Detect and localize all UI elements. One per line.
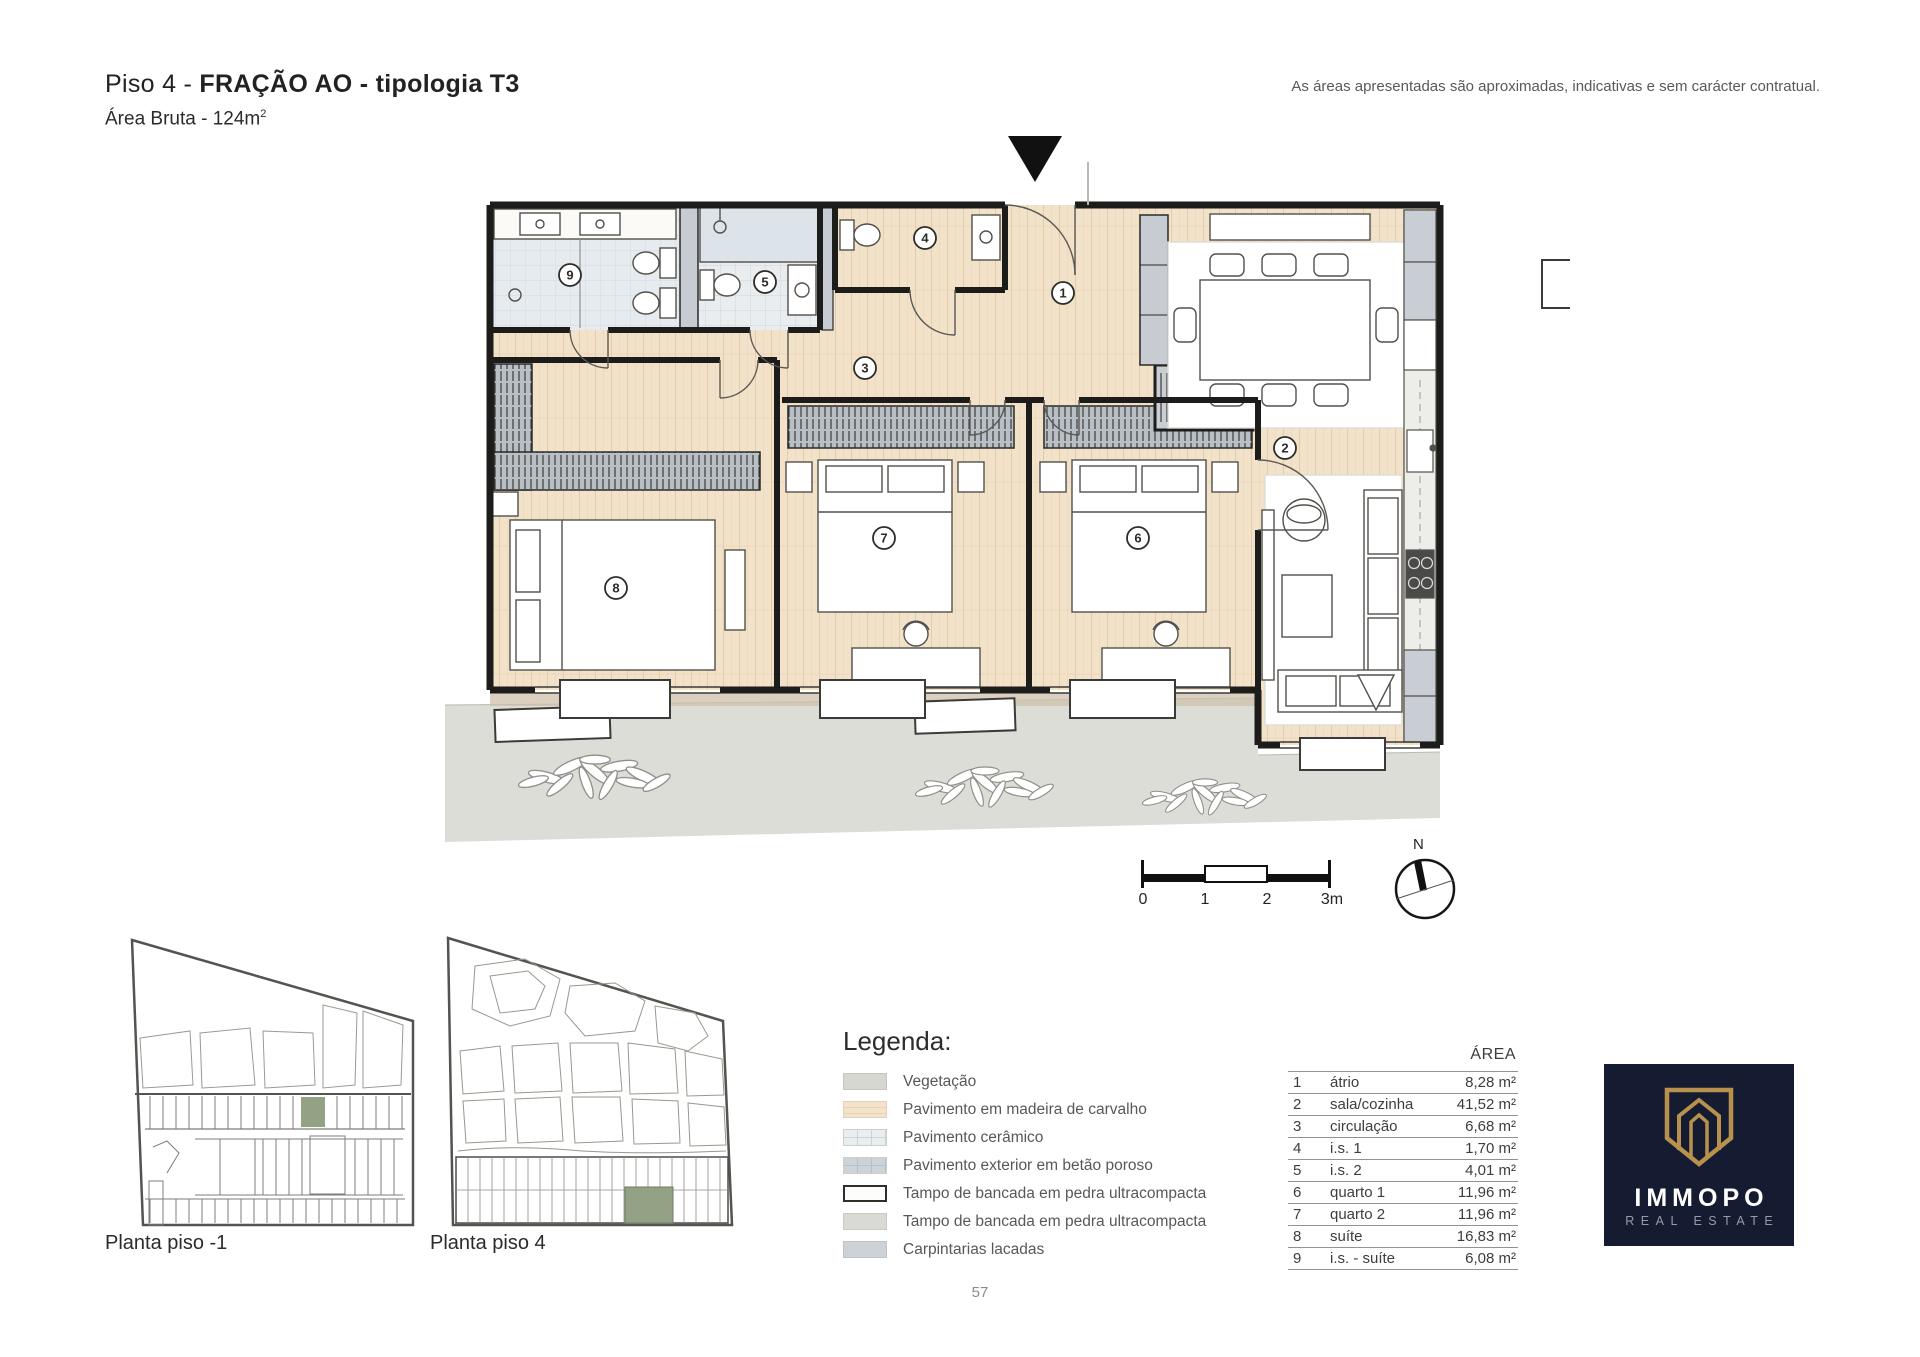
room-label-1: 1	[1059, 286, 1066, 301]
highlighted-unit	[301, 1097, 325, 1127]
chair	[1262, 384, 1296, 406]
terrace-planter-box	[914, 698, 1015, 733]
toilet	[854, 224, 880, 246]
kitchen	[1404, 210, 1436, 742]
sink	[788, 265, 816, 315]
sliding-door-panel	[1070, 680, 1175, 718]
nightstand	[1212, 462, 1238, 492]
nightstand	[958, 462, 984, 492]
room-label-5: 5	[761, 275, 768, 290]
room-label-8: 8	[612, 581, 619, 596]
page-title: Piso 4 - FRAÇÃO AO - tipologia T3	[105, 70, 520, 99]
entrance-arrow-icon	[1008, 136, 1062, 182]
dining-table	[1200, 280, 1370, 380]
legend-item: Pavimento cerâmico	[843, 1129, 1263, 1146]
bidet	[633, 292, 659, 314]
disclaimer-text: As áreas apresentadas são aproximadas, i…	[1020, 78, 1820, 95]
legend: Legenda: Vegetação Pavimento em madeira …	[843, 1026, 1263, 1269]
shaft	[680, 205, 698, 330]
cooktop	[1406, 550, 1434, 598]
stone-white-swatch	[843, 1185, 887, 1202]
legend-item: Pavimento em madeira de carvalho	[843, 1101, 1263, 1118]
kitchen-cabinet	[1404, 262, 1436, 320]
pillow	[1142, 466, 1198, 492]
brand-name: IMMOPO	[1604, 1184, 1794, 1213]
page: Piso 4 - FRAÇÃO AO - tipologia T3 Área B…	[0, 0, 1920, 1357]
stone-grey-swatch	[843, 1213, 887, 1230]
logo-shield-icon	[1657, 1082, 1741, 1170]
sliding-door-panel	[820, 680, 925, 718]
appliance	[1404, 320, 1436, 370]
adjacent-unit-box	[1542, 260, 1570, 308]
sink	[972, 215, 1000, 260]
table-row: 4i.s. 11,70 m²	[1288, 1137, 1518, 1159]
pillow	[516, 530, 540, 592]
bench	[725, 550, 745, 630]
toilet	[714, 274, 740, 296]
legend-item: Vegetação	[843, 1073, 1263, 1090]
mini-plan-piso-4	[430, 931, 760, 1243]
hall-wardrobe	[1140, 215, 1168, 365]
legend-item: Carpintarias lacadas	[843, 1241, 1263, 1258]
scale-label-2: 2	[1263, 891, 1272, 908]
table-row: 1átrio8,28 m²	[1288, 1071, 1518, 1093]
compass-icon: N	[1383, 833, 1467, 929]
nightstand	[1040, 462, 1066, 492]
title-block: Piso 4 - FRAÇÃO AO - tipologia T3 Área B…	[105, 70, 520, 130]
legend-title: Legenda:	[843, 1026, 1263, 1057]
room-label-9: 9	[566, 268, 573, 283]
sliding-door-panel	[560, 680, 670, 718]
scale-bar: 0 1 2 3m	[1135, 852, 1350, 912]
chair	[1314, 384, 1348, 406]
vegetation-swatch	[843, 1073, 887, 1090]
table-row: 9i.s. - suíte6,08 m²	[1288, 1247, 1518, 1269]
logo-card: IMMOPO REAL ESTATE	[1604, 1064, 1794, 1246]
nightstand	[786, 462, 812, 492]
legend-item: Pavimento exterior em betão poroso	[843, 1157, 1263, 1174]
porous-concrete-swatch	[843, 1157, 887, 1174]
table-row: 8suíte16,83 m²	[1288, 1225, 1518, 1247]
table-row: 3circulação6,68 m²	[1288, 1115, 1518, 1137]
legend-item: Tampo de bancada em pedra ultracompacta	[843, 1185, 1263, 1202]
pillow	[516, 600, 540, 662]
sink	[580, 213, 620, 235]
dining-area	[1168, 214, 1420, 428]
north-label: N	[1413, 836, 1424, 853]
area-table: ÁREA 1átrio8,28 m² 2sala/cozinha41,52 m²…	[1288, 1046, 1518, 1270]
pillow	[826, 466, 882, 492]
legend-item: Tampo de bancada em pedra ultracompacta	[843, 1213, 1263, 1230]
sink	[520, 213, 560, 235]
chair	[1314, 254, 1348, 276]
gross-area-subtitle: Área Bruta - 124m2	[105, 108, 520, 130]
chair	[1262, 254, 1296, 276]
page-title-prefix: Piso 4 -	[105, 70, 199, 98]
chair	[904, 622, 928, 646]
sideboard	[1210, 214, 1370, 240]
page-title-bold: FRAÇÃO AO - tipologia T3	[199, 70, 519, 98]
ceramic-swatch	[843, 1129, 887, 1146]
scale-label-1: 1	[1201, 891, 1210, 908]
mini-plan-4-label: Planta piso 4	[430, 1232, 546, 1255]
scale-label-3m: 3m	[1321, 891, 1343, 908]
table-row: 7quarto 211,96 m²	[1288, 1203, 1518, 1225]
living-area	[1262, 475, 1402, 725]
chair	[1376, 308, 1398, 342]
table-row: 2sala/cozinha41,52 m²	[1288, 1093, 1518, 1115]
oak-wood-swatch	[843, 1101, 887, 1118]
shower	[700, 207, 818, 262]
room-label-7: 7	[880, 531, 887, 546]
toilet	[633, 252, 659, 274]
chair	[1174, 308, 1196, 342]
nightstand	[492, 492, 518, 516]
highlighted-unit-ao	[625, 1187, 673, 1223]
page-number: 57	[950, 1284, 1010, 1301]
pillow	[1080, 466, 1136, 492]
chair	[1154, 622, 1178, 646]
tv-console	[1262, 510, 1274, 680]
mini-plan-piso-minus1	[105, 933, 435, 1243]
room-label-2: 2	[1281, 441, 1288, 456]
room-label-3: 3	[861, 361, 868, 376]
lacquered-carpentry-swatch	[843, 1241, 887, 1258]
room-label-6: 6	[1134, 531, 1141, 546]
table-row: 5i.s. 24,01 m²	[1288, 1159, 1518, 1181]
coffee-table	[1282, 575, 1332, 637]
mini-plan-minus1-label: Planta piso -1	[105, 1232, 227, 1255]
brand-tagline: REAL ESTATE	[1604, 1214, 1794, 1228]
scale-label-0: 0	[1139, 891, 1148, 908]
chair	[1210, 254, 1244, 276]
shaft	[822, 205, 833, 330]
kitchen-cabinet	[1404, 210, 1436, 262]
kitchen-sink	[1407, 430, 1433, 472]
sliding-door-panel	[1300, 738, 1385, 770]
pillow	[888, 466, 944, 492]
room-label-4: 4	[921, 231, 929, 246]
table-row: 6quarto 111,96 m²	[1288, 1181, 1518, 1203]
area-table-header: ÁREA	[1288, 1046, 1518, 1071]
main-floor-plan: 1 2 3 4 5 6 7 8 9	[420, 130, 1570, 870]
